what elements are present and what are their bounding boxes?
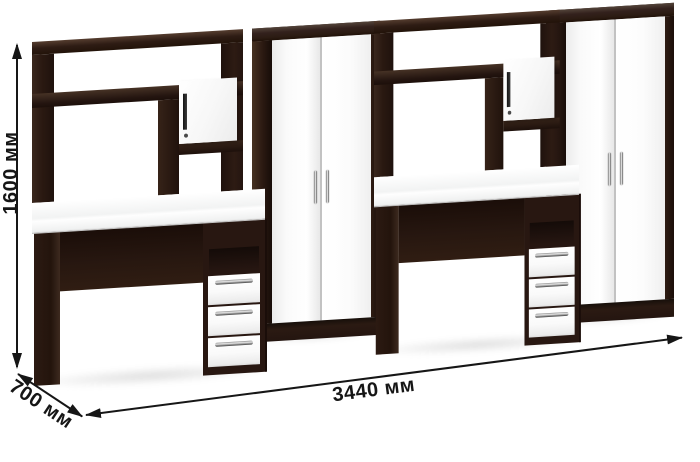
drawer-handle: [535, 312, 568, 318]
hutch-divider: [485, 77, 503, 170]
wardrobe-handle-left: [608, 153, 611, 186]
cabinet-door-knob: [508, 111, 512, 115]
drawer-handle: [215, 310, 253, 316]
cabinet-door-handle: [183, 94, 187, 130]
dimension-height-label: 1600 мм: [0, 103, 26, 243]
hutch-divider: [158, 99, 179, 195]
drawer-handle: [215, 279, 253, 285]
wardrobe-handle-right: [326, 170, 329, 203]
cabinet-door-handle: [507, 72, 511, 107]
drawer-3: [529, 307, 575, 338]
desk-back-panel: [399, 197, 525, 263]
desk-back-panel: [60, 223, 203, 292]
wardrobe-side-panel-right: [665, 16, 674, 300]
drawer-handle: [215, 341, 253, 347]
hutch-top-panel: [32, 29, 243, 55]
drawer-2: [529, 277, 575, 308]
drawer-pedestal: [203, 219, 267, 376]
wardrobe-1: [252, 21, 380, 343]
desk-unit-1: [32, 28, 265, 386]
hutch-cabinet-door: [179, 78, 237, 145]
desk-side-panel: [34, 231, 60, 386]
product-render-scene: 1600 мм 700 мм 3440 мм: [0, 0, 700, 462]
hutch-cabinet-door: [503, 57, 554, 121]
hutch-left-panel: [374, 33, 393, 178]
drawer-1: [529, 247, 575, 278]
hutch-left-panel: [32, 54, 54, 203]
cabinet-door-knob: [184, 134, 188, 138]
drawer-1: [208, 273, 260, 305]
wardrobe-door-right: [322, 34, 371, 320]
drawer-pedestal: [524, 194, 580, 346]
wardrobe-handle-right: [620, 152, 623, 185]
desk-side-panel: [376, 205, 399, 355]
wardrobe-door-left: [272, 37, 320, 323]
desk-unit-2: [374, 9, 579, 355]
drawer-handle: [535, 252, 568, 258]
drawer-3: [208, 335, 260, 367]
wardrobe-handle-left: [314, 171, 317, 204]
drawer-2: [208, 304, 260, 336]
hutch-top-panel: [374, 10, 560, 34]
drawer-handle: [535, 282, 568, 288]
wardrobe-door-right: [616, 16, 665, 302]
